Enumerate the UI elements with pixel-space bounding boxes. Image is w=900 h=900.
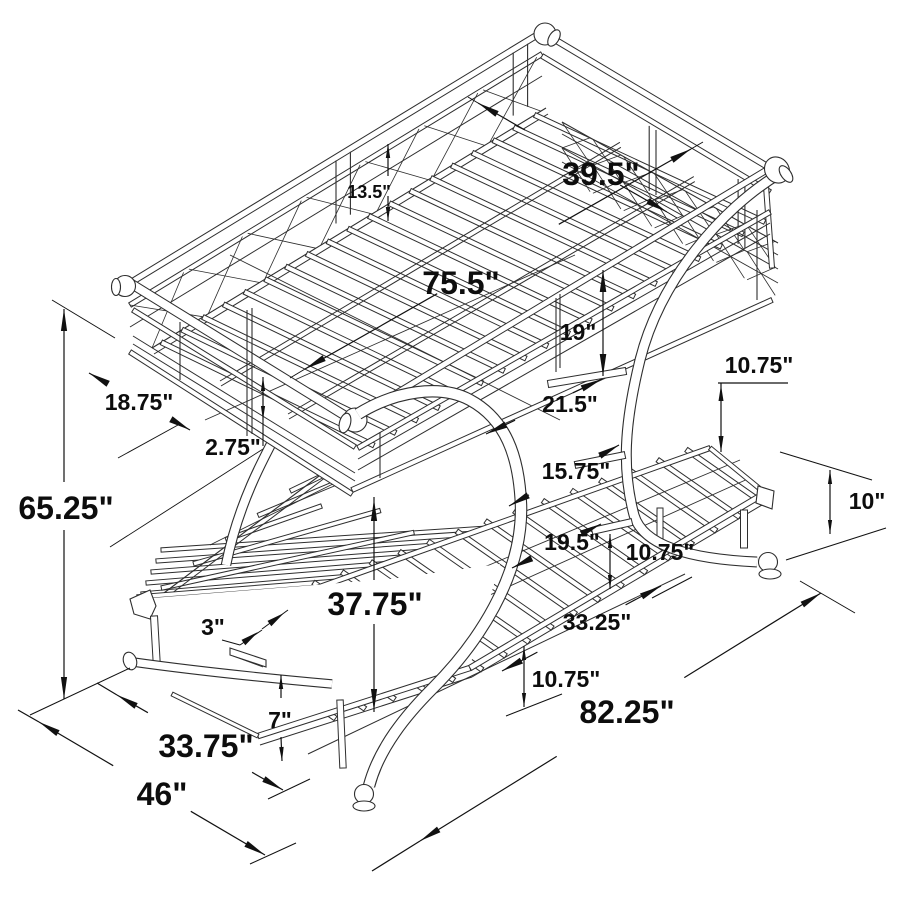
svg-text:10.75": 10.75": [626, 539, 694, 565]
svg-text:19.5": 19.5": [544, 529, 600, 555]
svg-text:37.75": 37.75": [327, 586, 422, 622]
svg-text:10": 10": [849, 488, 886, 514]
svg-text:33.75": 33.75": [158, 728, 253, 764]
svg-text:21.5": 21.5": [542, 391, 598, 417]
svg-text:75.5": 75.5": [422, 265, 499, 301]
svg-text:10.75": 10.75": [532, 666, 600, 692]
svg-text:7": 7": [268, 707, 292, 733]
svg-text:2.75": 2.75": [205, 434, 261, 460]
svg-text:33.25": 33.25": [563, 609, 631, 635]
svg-text:13.5": 13.5": [347, 182, 391, 202]
svg-text:15.75": 15.75": [542, 458, 610, 484]
svg-text:46": 46": [137, 776, 188, 812]
svg-text:3": 3": [201, 614, 225, 640]
svg-text:18.75": 18.75": [105, 389, 173, 415]
svg-text:19": 19": [560, 319, 597, 345]
svg-text:82.25": 82.25": [579, 694, 674, 730]
svg-text:10.75": 10.75": [725, 352, 793, 378]
svg-text:65.25": 65.25": [18, 490, 113, 526]
svg-text:39.5": 39.5": [562, 156, 639, 192]
